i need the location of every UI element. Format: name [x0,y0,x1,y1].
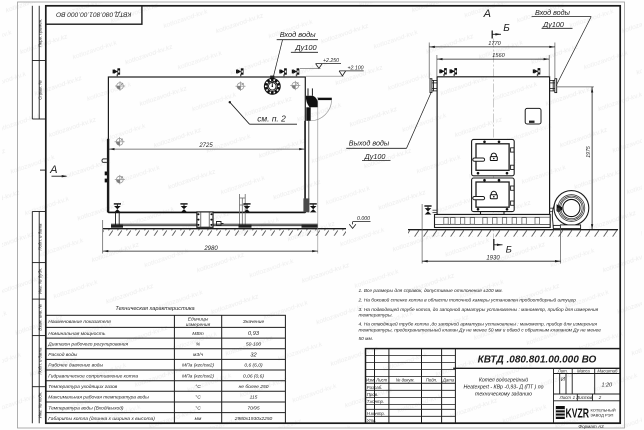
svg-text:Формат А3: Формат А3 [578,424,604,429]
svg-text:2980: 2980 [203,246,218,252]
svg-text:А: А [483,8,491,20]
svg-text:Перв. примен.: Перв. примен. [38,19,43,48]
svg-text:Дата: Дата [442,378,455,383]
svg-text:0,6 (6,0): 0,6 (6,0) [244,363,263,369]
svg-text:Подп. и дата: Подп. и дата [38,223,43,251]
svg-text:КВТД .080.801.00.000 ВО: КВТД .080.801.00.000 ВО [478,354,597,365]
svg-text:Выход воды: Выход воды [349,139,390,148]
svg-text:70/95: 70/95 [247,405,260,411]
svg-text:3. На подводящей трубе котла,: 3. На подводящей трубе котла, до запорно… [359,306,599,313]
svg-text:Диапазон рабочего регулировани: Диапазон рабочего регулирования [47,341,128,347]
svg-text:115: 115 [250,395,258,401]
svg-text:Разраб.: Разраб. [367,385,383,390]
svg-text:Б: Б [503,23,510,34]
svg-text:техническому заданию: техническому заданию [475,391,532,397]
svg-text:Подп.: Подп. [426,378,437,383]
svg-text:Вход воды: Вход воды [280,30,316,39]
svg-text:Изм: Изм [366,378,374,383]
svg-text:Масса: Масса [577,368,590,373]
svg-text:50 мм.: 50 мм. [359,336,374,342]
svg-text:Ду100: Ду100 [294,43,317,52]
svg-text:Утв.: Утв. [367,418,377,423]
svg-text:Лист: Лист [375,378,387,383]
svg-text:1930: 1930 [486,255,500,261]
svg-text:Максимальная рабочая температу: Максимальная рабочая температура воды [48,395,149,401]
svg-text:32: 32 [250,353,257,359]
svg-text:2725: 2725 [198,143,213,149]
svg-text:%: % [196,341,201,347]
svg-text:Инв. № дубл.: Инв. № дубл. [38,268,43,294]
svg-text:2980х1930х2250: 2980х1930х2250 [234,416,273,422]
svg-text:Heatexpert - КВр -0,93- Д (ПТ: Heatexpert - КВр -0,93- Д (ПТ ) по [464,384,544,390]
svg-text:+2.250: +2.250 [323,58,339,64]
svg-text:Листов: Листов [575,395,593,400]
svg-text:не более 250: не более 250 [239,384,269,390]
svg-text:Техническая характеристика: Техническая характеристика [115,306,194,312]
svg-text:Лист: Лист [559,395,572,400]
svg-text:KVZR: KVZR [566,406,590,420]
svg-text:МПа (кгс/см2): МПа (кгс/см2) [182,363,214,369]
svg-text:МПа (кгс/см2): МПа (кгс/см2) [182,373,214,379]
svg-text:0,06 (0,6): 0,06 (0,6) [243,373,264,379]
svg-text:1. Все размеры для справок, д: 1. Все размеры для справок, допустимые о… [359,288,503,294]
svg-text:№ докум.: № докум. [396,378,415,383]
svg-text:+2.100: +2.100 [347,65,363,71]
svg-text:Масштаб: Масштаб [597,368,618,373]
svg-text:м3/ч: м3/ч [193,352,203,358]
svg-text:Ду100: Ду100 [542,20,564,29]
svg-text:Значение: Значение [243,319,265,325]
svg-text:Температура уходящих газов: Температура уходящих газов [48,384,117,390]
svg-text:Б: Б [506,244,512,255]
svg-text:2. На боковой стенке котла в о: 2. На боковой стенке котла в области топ… [358,297,577,304]
svg-text:1770: 1770 [488,41,501,47]
svg-text:°С: °С [195,384,201,390]
svg-text:Т.контр.: Т.контр. [367,399,384,404]
svg-text:Номинальная мощность: Номинальная мощность [48,331,106,337]
svg-text:1560: 1560 [492,53,505,59]
svg-text:0,93: 0,93 [248,331,260,337]
svg-text:КВТД.080.801.00.000 ВО: КВТД.080.801.00.000 ВО [56,10,131,17]
svg-text:см. п. 2: см. п. 2 [257,114,286,124]
svg-text:И: И [561,377,565,383]
svg-text:температуры.: температуры. [359,313,393,318]
svg-text:2: 2 [598,395,602,400]
svg-text:Ду100: Ду100 [364,152,386,161]
svg-text:Гидравлическое сопротивление к: Гидравлическое сопротивление котла [48,373,138,379]
svg-text:0.000: 0.000 [357,216,370,222]
svg-text:Температура воды (Вход/выход): Температура воды (Вход/выход) [48,405,124,411]
svg-text:Лит.: Лит. [557,368,568,373]
svg-text:Рабочее давление воды: Рабочее давление воды [48,363,103,369]
svg-text:1975: 1975 [586,146,592,158]
svg-text:Габариты котла (длинна х ширин: Габариты котла (длинна х ширина х высота… [48,416,155,422]
svg-text:1:20: 1:20 [602,382,613,388]
svg-text:4. На отводящей трубе котла ,д: 4. На отводящей трубе котла ,до запорной… [359,321,598,328]
svg-text:ЗАВОД РЭП: ЗАВОД РЭП [591,413,614,418]
svg-text:Котел водогрейный: Котел водогрейный [479,376,528,383]
svg-text:температуры, предохранительный: температуры, предохранительный клапан Ду… [359,327,602,334]
svg-text:Взам. инв. №: Взам. инв. № [38,304,43,331]
svg-text:мм: мм [195,417,202,422]
svg-text:Вход воды: Вход воды [535,8,571,17]
svg-text:Инв. № подл.: Инв. № подл. [38,392,43,419]
svg-text:°С: °С [195,405,201,411]
svg-text:Н.контр.: Н.контр. [367,411,385,416]
svg-text:Пров.: Пров. [367,392,378,397]
svg-text:Расход воды: Расход воды [48,352,77,358]
svg-text:Подп. и дата: Подп. и дата [38,347,43,375]
svg-text:МВт: МВт [192,331,203,337]
svg-text:Единицы: Единицы [188,316,209,322]
svg-text:измерения: измерения [186,323,211,328]
svg-text:А: А [49,164,57,176]
svg-text:°С: °С [195,395,201,401]
svg-text:Справ. №: Справ. № [38,80,43,100]
svg-text:Наименование показателя: Наименование показателя [48,319,111,325]
svg-text:50-100: 50-100 [246,341,262,347]
